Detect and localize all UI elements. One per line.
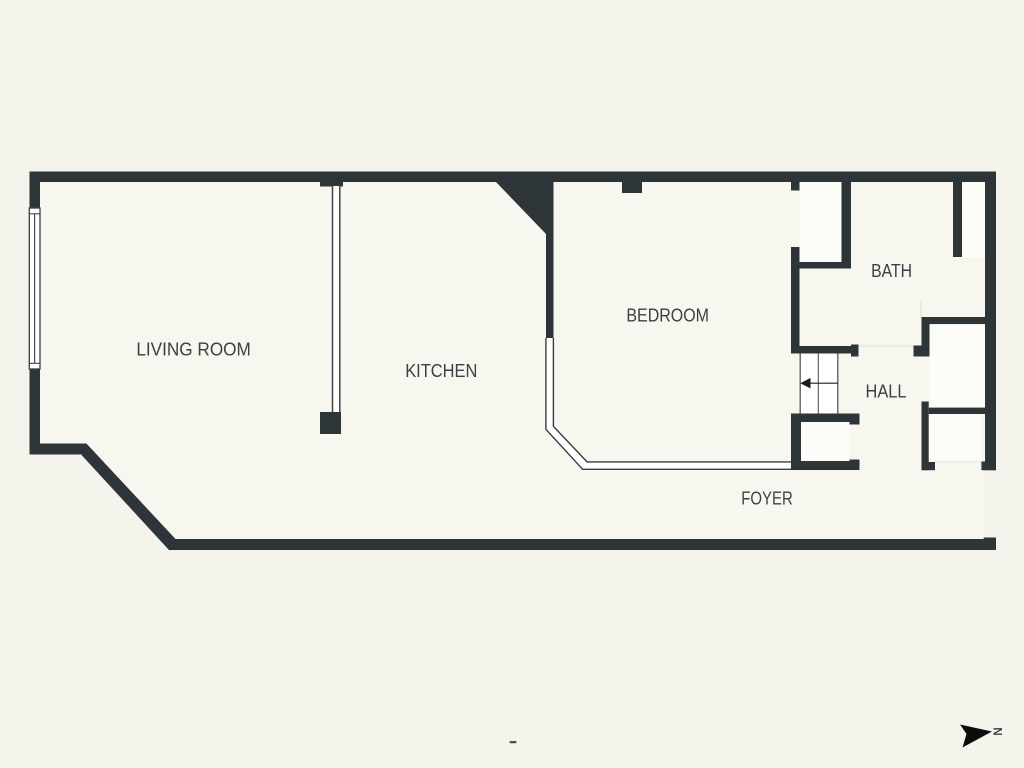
svg-text:BEDROOM: BEDROOM — [626, 306, 709, 326]
svg-text:HALL: HALL — [866, 382, 907, 402]
svg-text:KITCHEN: KITCHEN — [405, 361, 477, 381]
svg-text:BATH: BATH — [871, 261, 912, 281]
svg-text:LIVING ROOM: LIVING ROOM — [136, 340, 251, 360]
svg-text:FOYER: FOYER — [741, 489, 793, 509]
svg-text:N: N — [991, 727, 1003, 735]
